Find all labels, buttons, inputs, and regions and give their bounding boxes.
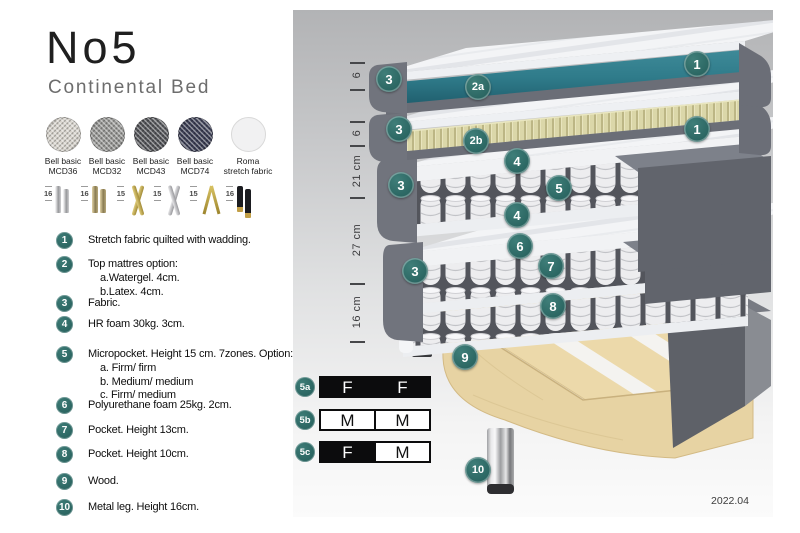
product-subtitle: Continental Bed: [48, 77, 210, 99]
fabric-swatch-circle: [178, 117, 213, 152]
leg-height-value: 16: [226, 189, 234, 198]
dimension-label: 6: [348, 53, 366, 97]
feature-line: Top mattres option:: [88, 256, 180, 272]
firmness-bar: FM: [319, 441, 431, 463]
leg-height-measure: 15: [189, 186, 197, 201]
fabric-swatch-circle: [90, 117, 125, 152]
dimension-label: 21 cm: [348, 149, 366, 193]
leg-icon-cylinder-blackgold: [237, 184, 257, 220]
firmness-bar: MM: [319, 409, 431, 431]
fabric-swatch-label: Romastretch fabric: [224, 156, 273, 176]
measure-tick: [81, 200, 88, 201]
feature-item: 1Stretch fabric quilted with wadding.: [56, 232, 251, 249]
fabric-name-line: MCD36: [45, 166, 81, 176]
fabric-swatch-label: Bell basicMCD32: [89, 156, 125, 176]
feature-item: 8Pocket. Height 10cm.: [56, 446, 189, 463]
feature-number-badge: 5: [56, 346, 73, 363]
feature-line: Stretch fabric quilted with wadding.: [88, 232, 251, 248]
leg-height-measure: 16: [80, 186, 88, 201]
callout-badge: 6: [507, 233, 533, 259]
leg-option: 16: [226, 184, 257, 220]
fabric-name-line: MCD43: [133, 166, 169, 176]
feature-text: Micropocket. Height 15 cm. 7zones. Optio…: [88, 346, 293, 403]
feature-number-badge: 1: [56, 232, 73, 249]
feature-text: HR foam 30kg. 3cm.: [88, 316, 185, 332]
feature-line: Pocket. Height 10cm.: [88, 446, 189, 462]
dimension-label: 27 cm: [348, 218, 366, 262]
leg-option: 15: [117, 184, 148, 218]
feature-item: 7Pocket. Height 13cm.: [56, 422, 189, 439]
firmness-row-badge: 5a: [295, 377, 315, 397]
leg-cylinder: [63, 189, 69, 213]
measure-tick: [117, 200, 124, 201]
leg-height-value: 16: [80, 189, 88, 198]
callout-badge: 2b: [463, 128, 489, 154]
leg-height-measure: 15: [153, 186, 161, 201]
leg-height-value: 15: [153, 189, 161, 198]
fabric-swatch-label: Bell basicMCD36: [45, 156, 81, 176]
feature-item: 2Top mattres option:a.Watergel. 4cm.b.La…: [56, 256, 180, 299]
fabric-swatch-label: Bell basicMCD43: [133, 156, 169, 176]
feature-line: a.Watergel. 4cm.: [88, 272, 180, 286]
leg-height-value: 15: [117, 189, 125, 198]
leg-option: 16: [44, 184, 75, 220]
measure-tick: [226, 200, 233, 201]
fabric-swatch-circle: [231, 117, 266, 152]
feature-line: a. Firm/ firm: [88, 362, 293, 376]
feature-line: Micropocket. Height 15 cm. 7zones. Optio…: [88, 346, 293, 362]
firmness-cell: M: [321, 411, 374, 429]
feature-line: Pocket. Height 13cm.: [88, 422, 189, 438]
leg-option: 16: [80, 184, 111, 220]
dimension-tick: [350, 283, 365, 285]
feature-item: 5Micropocket. Height 15 cm. 7zones. Opti…: [56, 346, 293, 403]
feature-text: Pocket. Height 13cm.: [88, 422, 189, 438]
firmness-row-badge: 5c: [295, 442, 315, 462]
leg-cylinder: [55, 186, 61, 213]
dimension-tick: [350, 341, 365, 343]
callout-badge: 8: [540, 293, 566, 319]
diagram-panel: 6621 cm27 cm16 cm 32a132b143546378910 5a…: [293, 10, 773, 517]
feature-item: 3Fabric.: [56, 295, 120, 312]
feature-line: Wood.: [88, 473, 119, 489]
callout-badge: 3: [402, 258, 428, 284]
measure-tick: [117, 186, 124, 187]
leg-cylinder: [100, 189, 106, 213]
feature-text: Fabric.: [88, 295, 120, 311]
callout-badge: 4: [504, 202, 530, 228]
firmness-cell: F: [321, 378, 374, 396]
feature-text: Polyurethane foam 25kg. 2cm.: [88, 397, 232, 413]
callout-badge: 3: [388, 172, 414, 198]
measure-tick: [81, 186, 88, 187]
fabric-name-line: Bell basic: [177, 156, 213, 166]
fabric-swatch-circle: [46, 117, 81, 152]
firmness-row: 5aFF: [295, 376, 431, 398]
fabric-swatch: Bell basicMCD43: [130, 117, 172, 176]
firmness-cell: M: [374, 411, 429, 429]
firmness-cell: F: [321, 443, 374, 461]
feature-text: Top mattres option:a.Watergel. 4cm.b.Lat…: [88, 256, 180, 299]
metal-leg-front: [487, 428, 514, 494]
fabric-name-line: stretch fabric: [224, 166, 273, 176]
feature-number-badge: 10: [56, 499, 73, 516]
firmness-row: 5cFM: [295, 441, 431, 463]
feature-text: Wood.: [88, 473, 119, 489]
callout-badge: 1: [684, 51, 710, 77]
version-label: 2022.04: [711, 495, 749, 507]
feature-number-badge: 3: [56, 295, 73, 312]
leg-icon-hairpin-gold: [201, 184, 221, 218]
leg-option: 15: [153, 184, 184, 218]
leg-height-value: 16: [44, 189, 52, 198]
fabric-swatch: Bell basicMCD74: [174, 117, 216, 176]
feature-number-badge: 4: [56, 316, 73, 333]
measure-tick: [190, 200, 197, 201]
leg-icon-cylinder-silver: [55, 184, 75, 220]
product-title: No5: [46, 22, 141, 74]
feature-text: Pocket. Height 10cm.: [88, 446, 189, 462]
firmness-bar: FF: [319, 376, 431, 398]
fabric-swatches: Bell basicMCD36Bell basicMCD32Bell basic…: [42, 117, 280, 176]
leg-option: 15: [189, 184, 220, 218]
feature-number-badge: 6: [56, 397, 73, 414]
measure-tick: [154, 200, 161, 201]
feature-line: b. Medium/ medium: [88, 376, 293, 390]
feature-item: 9Wood.: [56, 473, 119, 490]
leg-options: 161615151516: [44, 184, 262, 220]
fabric-name-line: Bell basic: [89, 156, 125, 166]
leg-cylinder: [237, 186, 243, 212]
leg-height-measure: 16: [44, 186, 52, 201]
firmness-cell: F: [374, 378, 429, 396]
callout-badge: 3: [376, 66, 402, 92]
feature-line: Metal leg. Height 16cm.: [88, 499, 199, 515]
leg-height-value: 15: [189, 189, 197, 198]
feature-item: 4HR foam 30kg. 3cm.: [56, 316, 185, 333]
dimension-label: 16 cm: [348, 290, 366, 334]
feature-number-badge: 8: [56, 446, 73, 463]
leg-icon-cross-silver: [164, 184, 184, 218]
firmness-row: 5bMM: [295, 409, 431, 431]
dimension-tick: [350, 197, 365, 199]
leg-icon-cross-gold: [128, 184, 148, 218]
feature-item: 10Metal leg. Height 16cm.: [56, 499, 199, 516]
feature-number-badge: 7: [56, 422, 73, 439]
leg-icon-cylinder-bronze: [92, 184, 112, 220]
fabric-swatch: Bell basicMCD32: [86, 117, 128, 176]
measure-tick: [190, 186, 197, 187]
measure-tick: [226, 186, 233, 187]
feature-item: 6Polyurethane foam 25kg. 2cm.: [56, 397, 232, 414]
leg-cylinder: [245, 189, 251, 218]
fabric-name-line: MCD74: [177, 166, 213, 176]
callout-badge: 5: [546, 175, 572, 201]
page: { "header": { "title": "No5", "subtitle"…: [0, 0, 800, 533]
callout-badge: 7: [538, 253, 564, 279]
callout-badge: 2a: [465, 74, 491, 100]
callout-badge: 3: [386, 116, 412, 142]
feature-line: HR foam 30kg. 3cm.: [88, 316, 185, 332]
feature-line: Fabric.: [88, 295, 120, 311]
feature-text: Metal leg. Height 16cm.: [88, 499, 199, 515]
fabric-name-line: Bell basic: [45, 156, 81, 166]
hairpin-bar: [210, 186, 220, 215]
fabric-swatch: Romastretch fabric: [218, 117, 278, 176]
feature-text: Stretch fabric quilted with wadding.: [88, 232, 251, 248]
fabric-swatch-label: Bell basicMCD74: [177, 156, 213, 176]
measure-tick: [154, 186, 161, 187]
fabric-swatch: Bell basicMCD36: [42, 117, 84, 176]
fabric-swatch-circle: [134, 117, 169, 152]
callout-badge: 10: [465, 457, 491, 483]
measure-tick: [45, 186, 52, 187]
fabric-name-line: Roma: [224, 156, 273, 166]
firmness-cell: M: [374, 443, 429, 461]
callout-badge: 1: [684, 116, 710, 142]
feature-line: Polyurethane foam 25kg. 2cm.: [88, 397, 232, 413]
leg-cylinder: [92, 186, 98, 213]
leg-height-measure: 16: [226, 186, 234, 201]
measure-tick: [45, 200, 52, 201]
firmness-row-badge: 5b: [295, 410, 315, 430]
callout-badge: 9: [452, 344, 478, 370]
feature-number-badge: 2: [56, 256, 73, 273]
fabric-name-line: MCD32: [89, 166, 125, 176]
feature-number-badge: 9: [56, 473, 73, 490]
fabric-name-line: Bell basic: [133, 156, 169, 166]
leg-height-measure: 15: [117, 186, 125, 201]
callout-badge: 4: [504, 148, 530, 174]
